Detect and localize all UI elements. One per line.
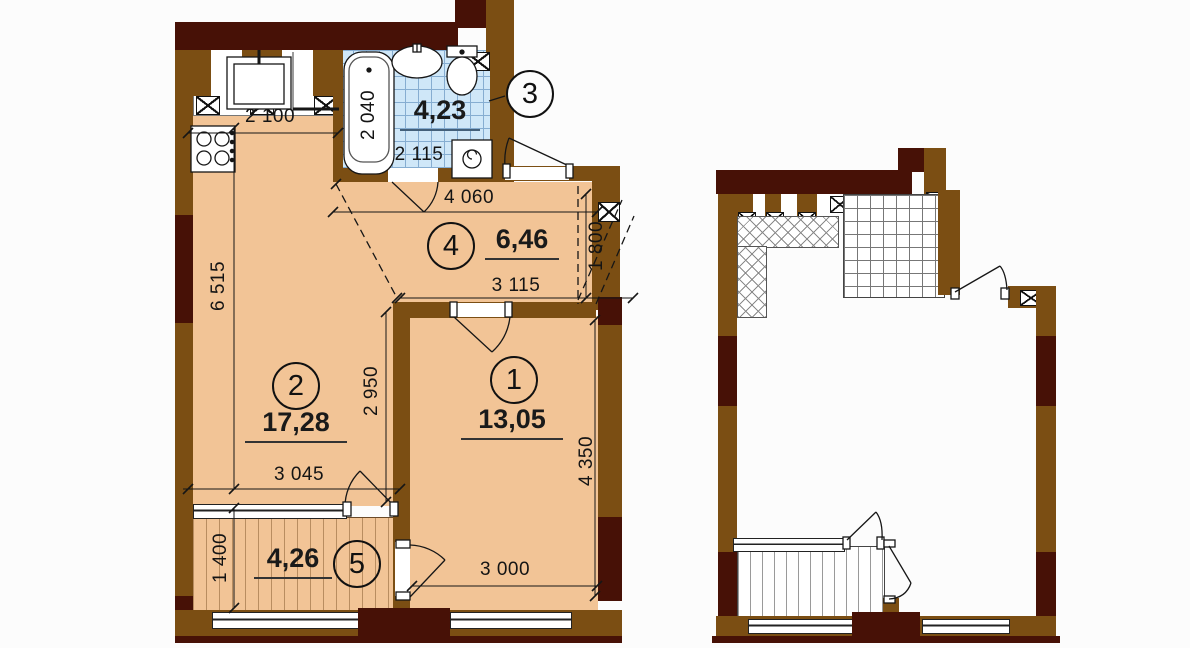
- toilet-icon: [447, 46, 477, 95]
- balcony-door-room2: [343, 471, 398, 516]
- room3-number-badge: 3: [506, 70, 554, 118]
- dim-bath-depth: 2 040: [358, 80, 380, 150]
- dim-room1-depth: 4 350: [576, 426, 598, 496]
- dim-left-side-height: 6 515: [208, 251, 230, 321]
- room5-number-badge: 5: [333, 540, 381, 588]
- room2-area-label: 17,28: [245, 407, 347, 443]
- outline-entry-door: [951, 266, 1009, 299]
- room5-area-label: 4,26: [254, 543, 332, 579]
- room1-area-label: 13,05: [461, 404, 563, 440]
- washbasin-icon: [392, 44, 442, 78]
- room4-area-label: 6,46: [485, 224, 559, 260]
- room4-number-badge: 4: [427, 222, 475, 270]
- dim-room1-width: 3 000: [460, 559, 550, 581]
- dim-balcony-depth: 1 400: [210, 523, 232, 593]
- dimension-lines: [183, 128, 633, 608]
- kitchen-sink-icon: [227, 50, 339, 114]
- dim-kitchen-width: 2 100: [225, 106, 315, 128]
- plan-linework: [0, 0, 1190, 648]
- dim-bath-width: 2 115: [374, 144, 464, 166]
- entry-door: [503, 138, 573, 178]
- outline-balcony-door-right: [884, 540, 911, 603]
- outline-balcony-door-top: [843, 512, 884, 549]
- room3-area-label: 4,23: [400, 95, 480, 131]
- dim-room2-width: 3 045: [254, 464, 344, 486]
- dim-hall-niche-depth: 1 800: [586, 211, 608, 281]
- dim-hall-width-top: 4 060: [424, 187, 514, 209]
- room1-door: [450, 302, 512, 352]
- room1-number-badge: 1: [490, 356, 538, 404]
- room3-callout-line: [489, 96, 505, 101]
- room2-number-badge: 2: [272, 362, 320, 410]
- balcony-door-room1: [396, 540, 445, 600]
- dim-hall-width-bottom: 3 115: [471, 275, 561, 297]
- dim-room2-depth: 2 950: [361, 356, 383, 426]
- floor-plan-canvas: 2 100 2 040 2 115 4 060 3 115 1 800 6 51…: [0, 0, 1190, 648]
